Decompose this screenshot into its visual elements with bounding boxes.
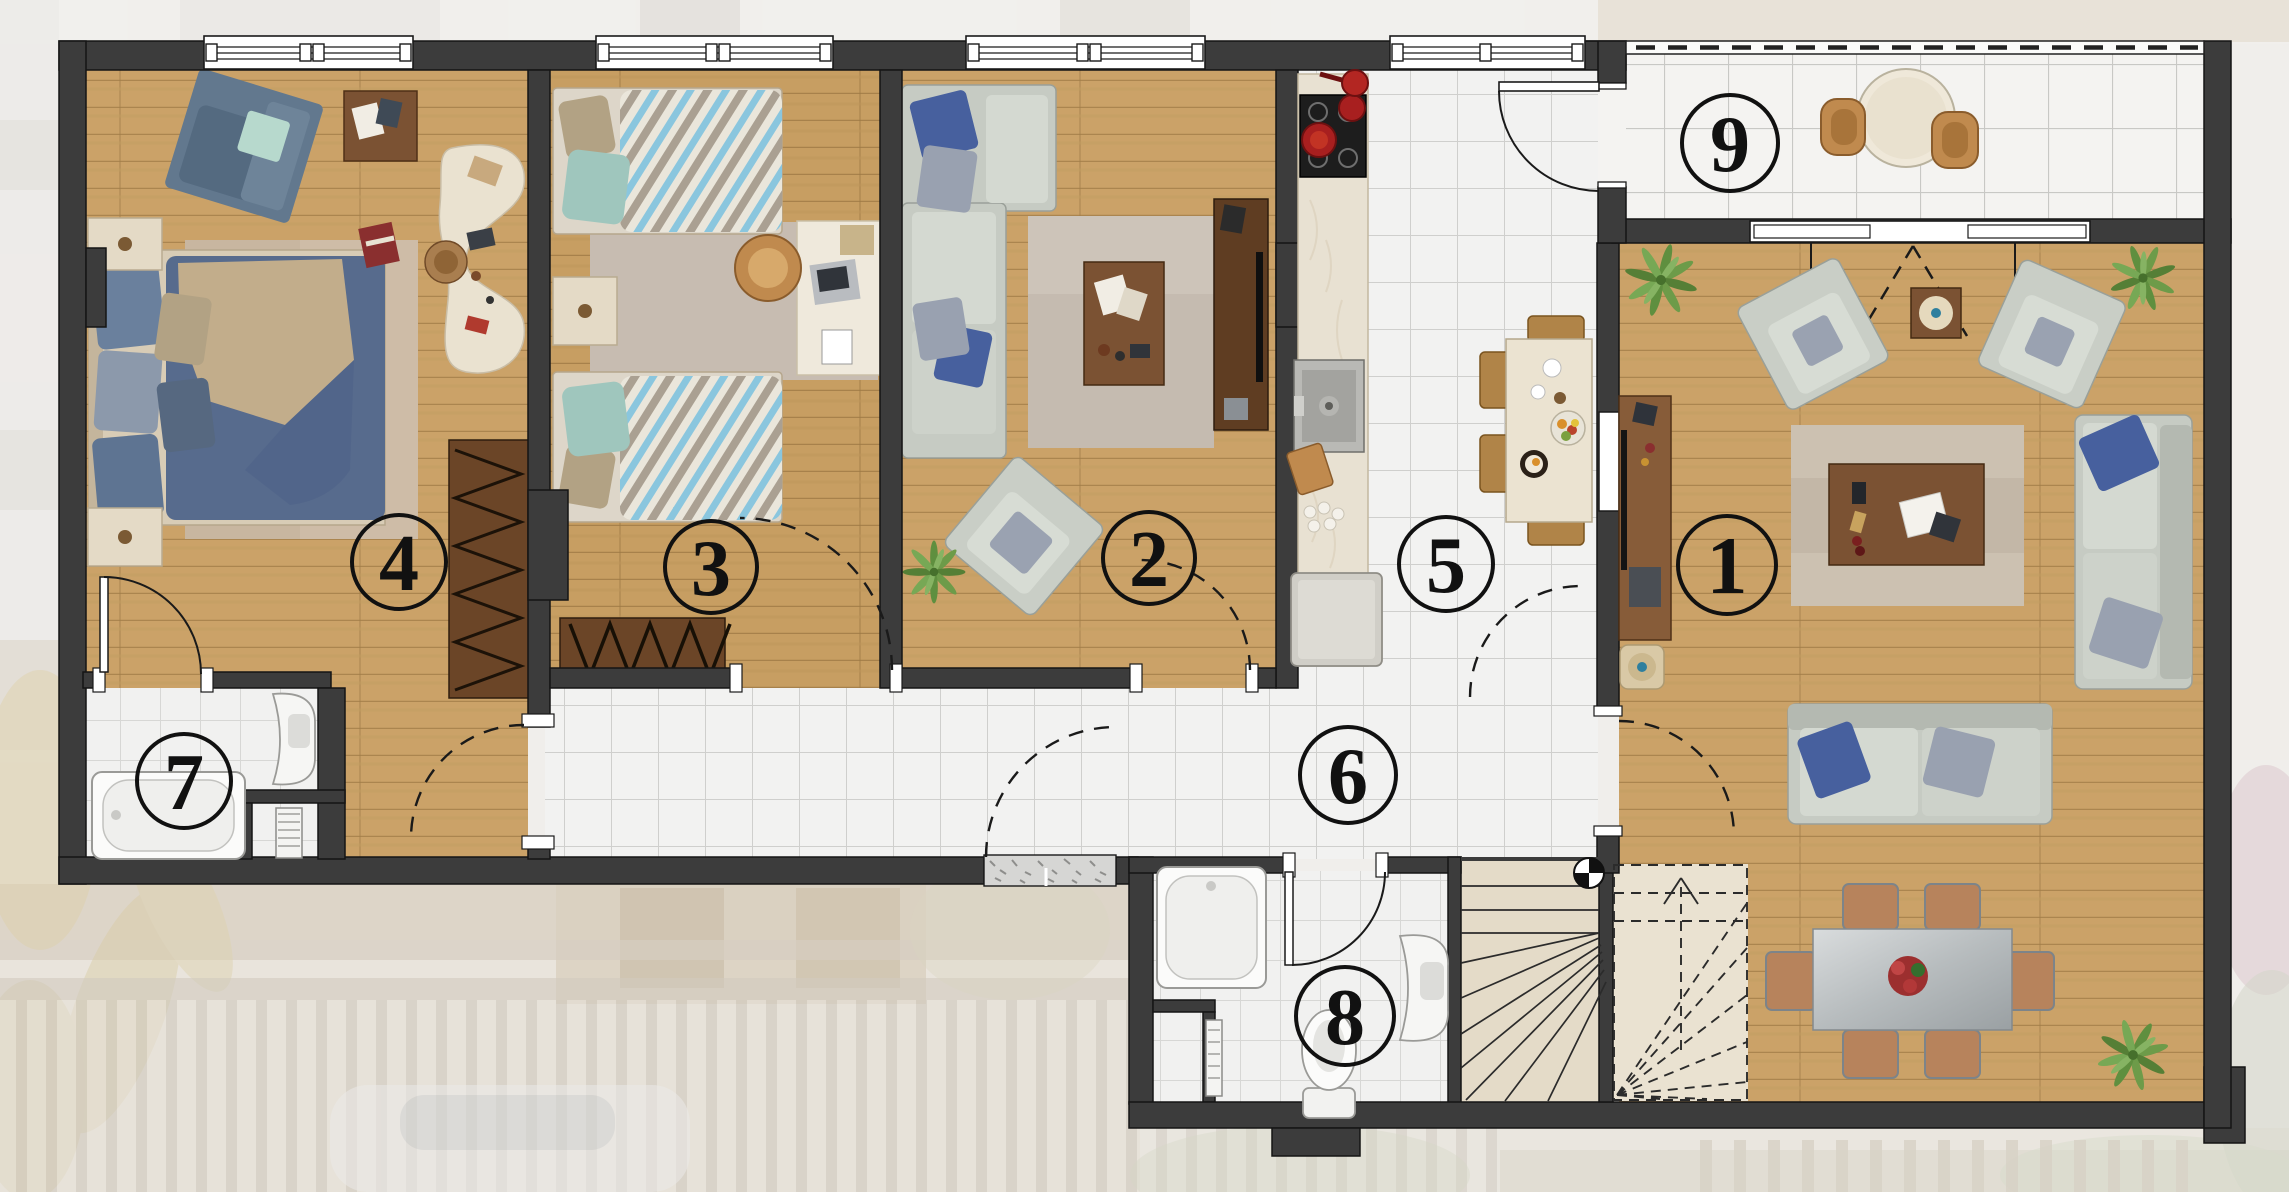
svg-text:5: 5 <box>1426 522 1466 610</box>
svg-text:3: 3 <box>691 525 731 613</box>
svg-text:6: 6 <box>1328 733 1368 821</box>
svg-text:1: 1 <box>1707 520 1748 611</box>
svg-text:4: 4 <box>379 520 419 608</box>
svg-text:8: 8 <box>1325 974 1365 1062</box>
svg-text:7: 7 <box>164 739 204 827</box>
svg-text:2: 2 <box>1129 516 1169 604</box>
svg-text:9: 9 <box>1710 101 1750 189</box>
